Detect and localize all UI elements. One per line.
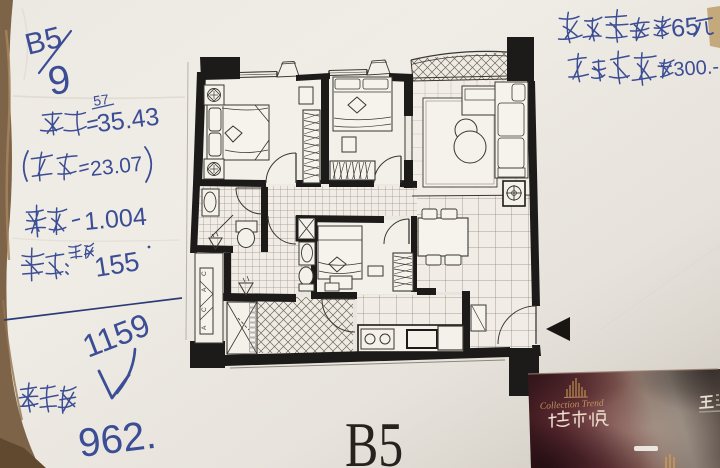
svg-text:65: 65 <box>670 12 701 43</box>
svg-text:C: C <box>201 307 208 312</box>
svg-text:1.004: 1.004 <box>83 203 148 236</box>
svg-text:A: A <box>201 287 208 292</box>
svg-text:962.: 962. <box>76 413 159 466</box>
svg-text:B5: B5 <box>345 410 403 468</box>
svg-text:A: A <box>201 325 208 330</box>
svg-text:C: C <box>201 271 208 276</box>
svg-text:300.-: 300.- <box>673 56 720 81</box>
